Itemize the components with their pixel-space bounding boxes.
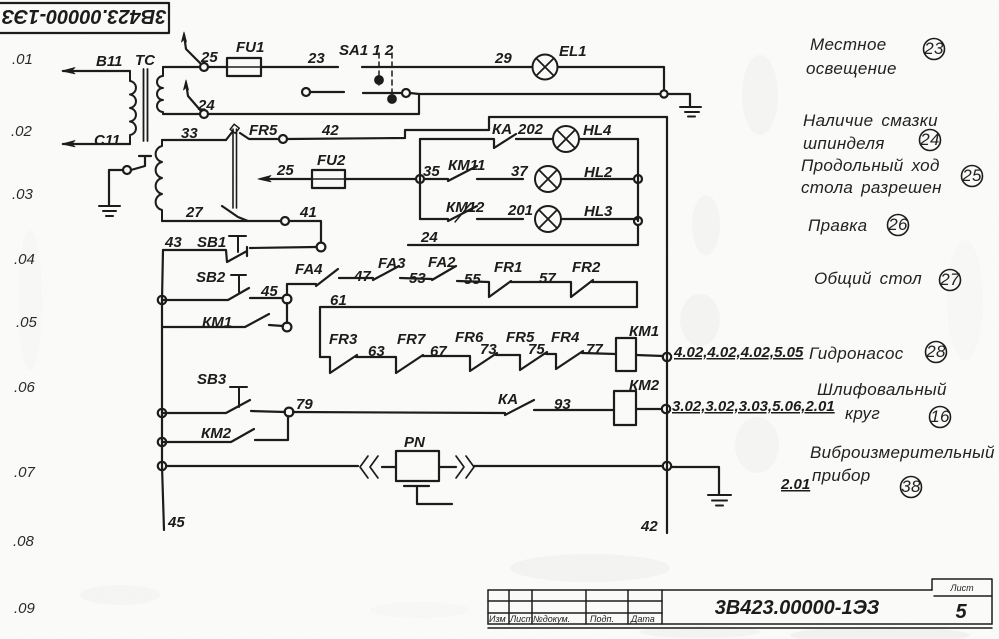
svg-text:28: 28 bbox=[925, 342, 946, 361]
svg-text:PN: PN bbox=[404, 434, 426, 451]
svg-text:45: 45 bbox=[167, 514, 185, 531]
svg-text:В11: В11 bbox=[96, 53, 122, 70]
svg-text:КА: КА bbox=[492, 121, 512, 138]
svg-text:FR2: FR2 bbox=[572, 259, 601, 276]
svg-text:Продольный ход: Продольный ход bbox=[801, 156, 940, 175]
svg-text:.08: .08 bbox=[13, 533, 35, 550]
svg-text:стола разрешен: стола разрешен bbox=[801, 178, 942, 197]
svg-text:Дата: Дата bbox=[630, 614, 655, 624]
svg-text:38: 38 bbox=[901, 477, 921, 496]
svg-text:Лист: Лист bbox=[509, 614, 534, 624]
svg-text:61: 61 bbox=[330, 292, 347, 309]
svg-text:КМ2: КМ2 bbox=[201, 425, 232, 442]
svg-text:4.02,4.02,4.02,5.05: 4.02,4.02,4.02,5.05 bbox=[673, 344, 804, 361]
svg-text:42: 42 bbox=[321, 122, 339, 139]
svg-text:КМ2: КМ2 bbox=[629, 377, 660, 394]
svg-text:FU1: FU1 bbox=[236, 39, 264, 56]
svg-text:ТС: ТС bbox=[135, 52, 156, 69]
svg-text:63: 63 bbox=[368, 343, 385, 360]
svg-text:Шлифовальный: Шлифовальный bbox=[817, 380, 947, 399]
svg-text:С11: С11 bbox=[94, 132, 120, 149]
svg-text:75: 75 bbox=[528, 341, 545, 358]
svg-text:37: 37 bbox=[511, 163, 528, 180]
svg-text:23: 23 bbox=[923, 39, 944, 58]
svg-text:79: 79 bbox=[296, 396, 313, 413]
svg-text:освещение: освещение bbox=[806, 59, 897, 78]
svg-text:Гидронасос: Гидронасос bbox=[809, 344, 904, 363]
svg-text:Наличие смазки: Наличие смазки bbox=[803, 111, 938, 130]
svg-text:67: 67 bbox=[430, 343, 447, 360]
svg-text:FU2: FU2 bbox=[317, 152, 346, 169]
svg-text:25: 25 bbox=[200, 49, 218, 66]
svg-text:КМ1: КМ1 bbox=[202, 314, 232, 331]
svg-text:FR7: FR7 bbox=[397, 331, 426, 348]
svg-text:.02: .02 bbox=[11, 123, 33, 140]
svg-text:HL3: HL3 bbox=[584, 203, 613, 220]
svg-text:77: 77 bbox=[586, 341, 603, 358]
svg-text:КМ12: КМ12 bbox=[446, 199, 485, 216]
svg-text:73: 73 bbox=[480, 341, 497, 358]
svg-text:прибор: прибор bbox=[812, 466, 871, 485]
svg-text:КМ1: КМ1 bbox=[629, 323, 659, 340]
svg-text:33: 33 bbox=[181, 125, 198, 142]
svg-text:FA2: FA2 bbox=[428, 254, 456, 271]
svg-text:3В423.00000-1ЭЗ: 3В423.00000-1ЭЗ bbox=[715, 597, 880, 619]
svg-text:FA4: FA4 bbox=[295, 261, 323, 278]
svg-text:3.02,3.02,3.03,5.06,2.01: 3.02,3.02,3.03,5.06,2.01 bbox=[672, 398, 835, 415]
svg-text:SB3: SB3 bbox=[197, 371, 227, 388]
svg-text:EL1: EL1 bbox=[559, 43, 587, 60]
svg-text:Правка: Правка bbox=[808, 216, 867, 235]
svg-text:24: 24 bbox=[420, 229, 438, 246]
svg-text:27: 27 bbox=[939, 270, 960, 289]
svg-text:26: 26 bbox=[887, 215, 908, 234]
svg-text:Виброизмерительный: Виброизмерительный bbox=[810, 443, 995, 462]
svg-text:43: 43 bbox=[164, 234, 182, 251]
svg-text:Местное: Местное bbox=[810, 35, 886, 54]
svg-text:FR1: FR1 bbox=[494, 259, 522, 276]
svg-text:53: 53 bbox=[409, 270, 426, 287]
svg-text:.05: .05 bbox=[16, 314, 38, 331]
svg-text:.07: .07 bbox=[14, 464, 36, 481]
svg-text:Изм: Изм bbox=[489, 614, 506, 624]
svg-text:круг: круг bbox=[845, 404, 880, 423]
svg-text:SB2: SB2 bbox=[196, 269, 226, 286]
svg-text:.09: .09 bbox=[14, 600, 36, 617]
svg-text:шпинделя: шпинделя bbox=[803, 134, 885, 153]
svg-text:35: 35 bbox=[423, 163, 440, 180]
svg-text:№докум.: №докум. bbox=[533, 614, 570, 624]
svg-text:3В423.00000-1ЭЗ: 3В423.00000-1ЭЗ bbox=[2, 5, 167, 27]
svg-text:5: 5 bbox=[955, 601, 967, 623]
svg-text:Лист: Лист bbox=[949, 583, 974, 593]
svg-text:SA1 1 2: SA1 1 2 bbox=[339, 42, 394, 59]
svg-text:25: 25 bbox=[276, 162, 294, 179]
svg-text:16: 16 bbox=[930, 407, 950, 426]
svg-text:КМ11: КМ11 bbox=[448, 157, 485, 174]
svg-text:57: 57 bbox=[539, 270, 556, 287]
svg-text:201: 201 bbox=[507, 202, 533, 219]
svg-text:HL4: HL4 bbox=[583, 122, 612, 139]
svg-text:27: 27 bbox=[185, 204, 203, 221]
svg-text:КА: КА bbox=[498, 391, 518, 408]
svg-text:45: 45 bbox=[260, 283, 278, 300]
svg-text:25: 25 bbox=[961, 166, 982, 185]
svg-text:.03: .03 bbox=[12, 186, 34, 203]
svg-text:23: 23 bbox=[307, 50, 325, 67]
svg-text:.01: .01 bbox=[12, 51, 33, 68]
svg-text:202: 202 bbox=[517, 121, 544, 138]
svg-text:FR3: FR3 bbox=[329, 331, 358, 348]
svg-text:FR5: FR5 bbox=[249, 122, 278, 139]
svg-text:24: 24 bbox=[197, 97, 215, 114]
svg-text:FR4: FR4 bbox=[551, 329, 580, 346]
svg-text:.06: .06 bbox=[14, 379, 36, 396]
svg-text:29: 29 bbox=[494, 50, 512, 67]
svg-text:Подп.: Подп. bbox=[590, 614, 614, 624]
svg-text:.04: .04 bbox=[14, 251, 35, 268]
svg-text:2.01: 2.01 bbox=[780, 476, 810, 493]
svg-text:41: 41 bbox=[299, 204, 317, 221]
svg-text:42: 42 bbox=[640, 518, 658, 535]
svg-text:Общий стол: Общий стол bbox=[814, 269, 922, 288]
svg-text:55: 55 bbox=[464, 271, 481, 288]
svg-text:93: 93 bbox=[554, 396, 571, 413]
svg-text:FA3: FA3 bbox=[378, 255, 406, 272]
svg-text:24: 24 bbox=[919, 130, 940, 149]
svg-text:SB1: SB1 bbox=[197, 234, 226, 251]
svg-text:47: 47 bbox=[353, 268, 371, 285]
